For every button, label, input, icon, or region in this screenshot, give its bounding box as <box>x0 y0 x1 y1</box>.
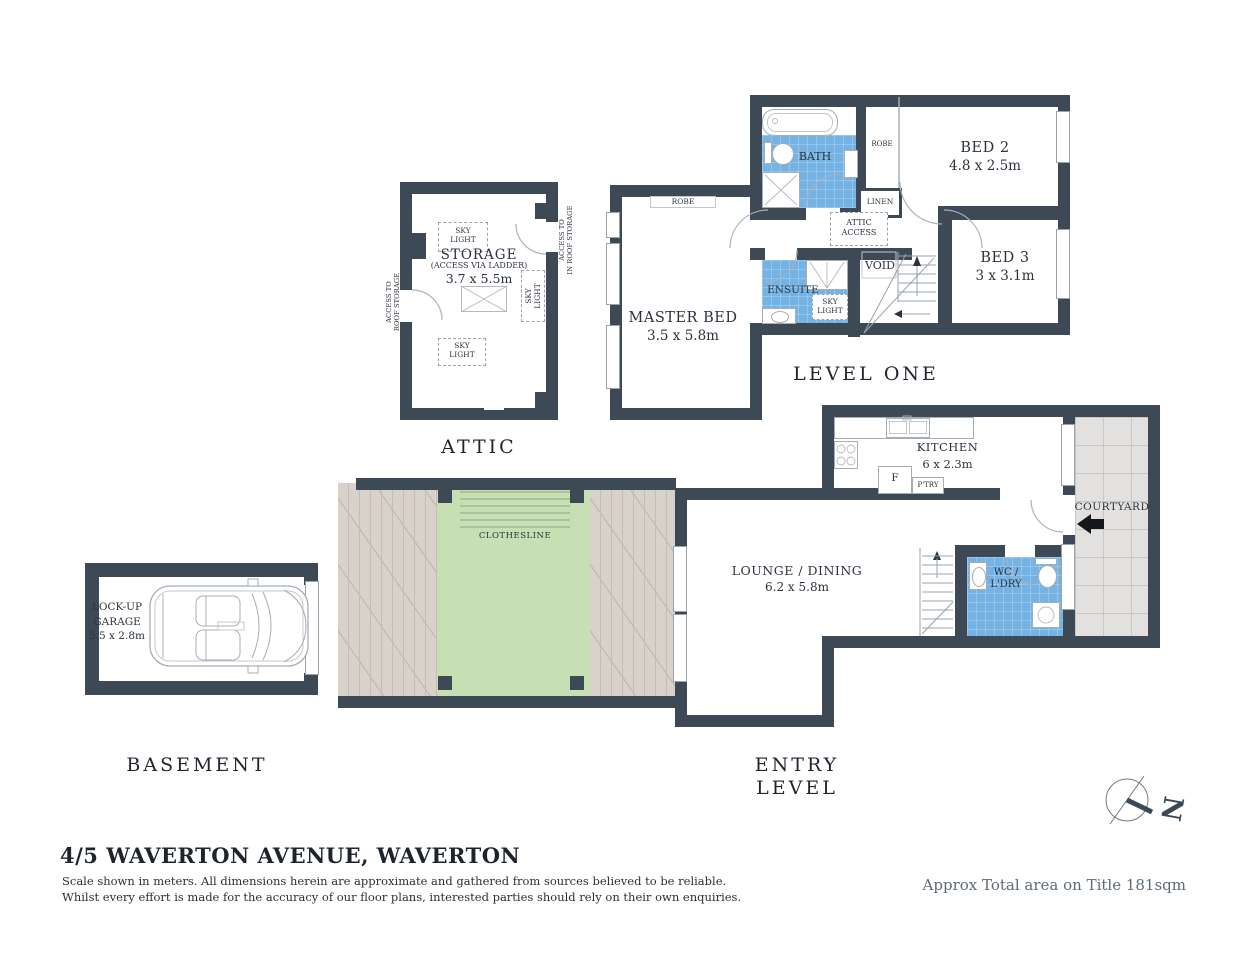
master-bed-dims: 3.5 x 5.8m <box>613 328 753 344</box>
section-label-entry-level: ENTRY LEVEL <box>717 754 877 800</box>
wall-segment <box>822 636 1160 648</box>
ladder-hatch <box>461 286 507 312</box>
wall-segment <box>546 194 558 222</box>
bed2-label: BED 2 <box>915 140 1055 158</box>
sink-bowl <box>909 421 927 434</box>
wall-segment <box>675 715 834 727</box>
section-label-level-one: LEVEL ONE <box>786 363 946 386</box>
wall-notch <box>484 400 504 410</box>
wall-segment <box>85 563 318 577</box>
stairs-entry <box>920 548 953 636</box>
toilet-tank <box>1035 558 1057 565</box>
lounge-dims: 6.2 x 5.8m <box>737 580 857 595</box>
lawn <box>437 483 590 696</box>
wall-segment <box>400 182 558 194</box>
floorplan-canvas: N STORAGE (ACCESS VIA LADDER) 3.7 x 5.5m… <box>0 0 1242 960</box>
courtyard-label: COURTYARD <box>1071 501 1153 514</box>
wall-segment <box>535 203 546 219</box>
skylight-label: SKY LIGHT <box>438 226 488 244</box>
kitchen-label: KITCHEN <box>905 440 990 454</box>
storage-access-label: (ACCESS VIA LADDER) <box>414 261 544 271</box>
window <box>1056 111 1070 163</box>
linen-label: LINEN <box>858 197 902 206</box>
compass-icon: N <box>1106 776 1189 824</box>
wall-segment <box>400 408 558 420</box>
window <box>1061 544 1075 610</box>
skylight-label: SKY LIGHT <box>438 341 486 359</box>
void-label: VOID <box>861 259 899 272</box>
wall-segment <box>750 248 765 260</box>
lounge-label: LOUNGE / DINING <box>727 563 867 578</box>
garage-door <box>305 581 319 675</box>
wc-laundry-label: WC / L'DRY <box>975 567 1037 591</box>
fridge-label: F <box>878 472 912 485</box>
page-title: 4/5 WAVERTON AVENUE, WAVERTON <box>60 843 600 869</box>
shower <box>762 172 800 208</box>
window <box>606 243 620 305</box>
sliding-door <box>673 614 687 682</box>
wall-segment <box>304 673 318 695</box>
wall-segment <box>675 488 1000 500</box>
basin <box>771 311 789 323</box>
wall-segment <box>822 648 834 727</box>
storage-dims: 3.7 x 5.5m <box>429 271 529 286</box>
bed3-dims: 3 x 3.1m <box>940 268 1070 284</box>
window <box>1061 424 1075 486</box>
total-area-note: Approx Total area on Title 181sqm <box>880 876 1186 894</box>
attic-access-label: ATTIC ACCESS <box>830 218 888 238</box>
wall-segment <box>85 681 318 695</box>
skylight-label: SKY LIGHT <box>812 297 848 315</box>
access-roof-storage-label: ACCESS TO ROOF STORAGE <box>385 267 405 337</box>
bath-label: BATH <box>790 150 840 163</box>
bath-shelf <box>844 150 858 178</box>
sink-bowl <box>889 421 907 434</box>
master-bed-label: MASTER BED <box>613 310 753 328</box>
bed3-label: BED 3 <box>940 250 1070 268</box>
washer <box>1032 602 1060 628</box>
wall-segment <box>955 545 1005 557</box>
toilet-tank <box>764 142 772 164</box>
ensuite-label: ENSUITE <box>764 284 822 297</box>
deck-left <box>338 483 437 696</box>
robe-label: ROBE <box>650 197 716 206</box>
wall-segment <box>822 405 1160 417</box>
deck-post <box>570 489 584 503</box>
car-icon <box>150 579 308 673</box>
access-in-roof-storage-label: ACCESS TO IN ROOF STORAGE <box>558 205 578 275</box>
deck-right <box>590 483 675 696</box>
deck-post <box>570 676 584 690</box>
skylight-label: SKY LIGHT <box>524 271 542 321</box>
compass-north-letter: N <box>1154 794 1189 824</box>
wall-segment <box>750 95 1070 107</box>
pantry-label: P'TRY <box>912 481 944 490</box>
wall-segment <box>610 408 762 420</box>
fence-segment <box>338 696 676 708</box>
wall-segment <box>535 392 546 408</box>
wall-segment <box>938 206 1070 220</box>
section-label-basement: BASEMENT <box>117 754 277 777</box>
stove <box>834 441 858 469</box>
wall-segment <box>1148 417 1160 648</box>
wall-segment <box>750 323 1070 335</box>
window <box>606 212 620 238</box>
section-label-attic: ATTIC <box>399 436 559 459</box>
clothesline-label: CLOTHESLINE <box>471 531 559 541</box>
wall-segment <box>955 557 967 636</box>
robe-label: ROBE <box>866 140 898 149</box>
garage-label: LOCK-UP GARAGE 5.5 x 2.8m <box>86 600 148 644</box>
kitchen-dims: 6 x 2.3m <box>905 457 990 471</box>
deck-post <box>438 676 452 690</box>
wall-segment <box>1035 545 1063 557</box>
deck-post <box>438 489 452 503</box>
toilet-bowl <box>1038 565 1057 588</box>
fence-segment <box>356 478 676 490</box>
bed2-dims: 4.8 x 2.5m <box>915 158 1055 174</box>
sliding-door <box>673 546 687 612</box>
bathtub-inner <box>767 113 833 132</box>
courtyard-floor <box>1075 417 1148 636</box>
wall-segment <box>546 252 558 420</box>
disclaimer-line1: Scale shown in meters. All dimensions he… <box>62 874 742 888</box>
wall-segment <box>750 208 806 220</box>
disclaimer-line2: Whilst every effort is made for the accu… <box>62 890 742 904</box>
